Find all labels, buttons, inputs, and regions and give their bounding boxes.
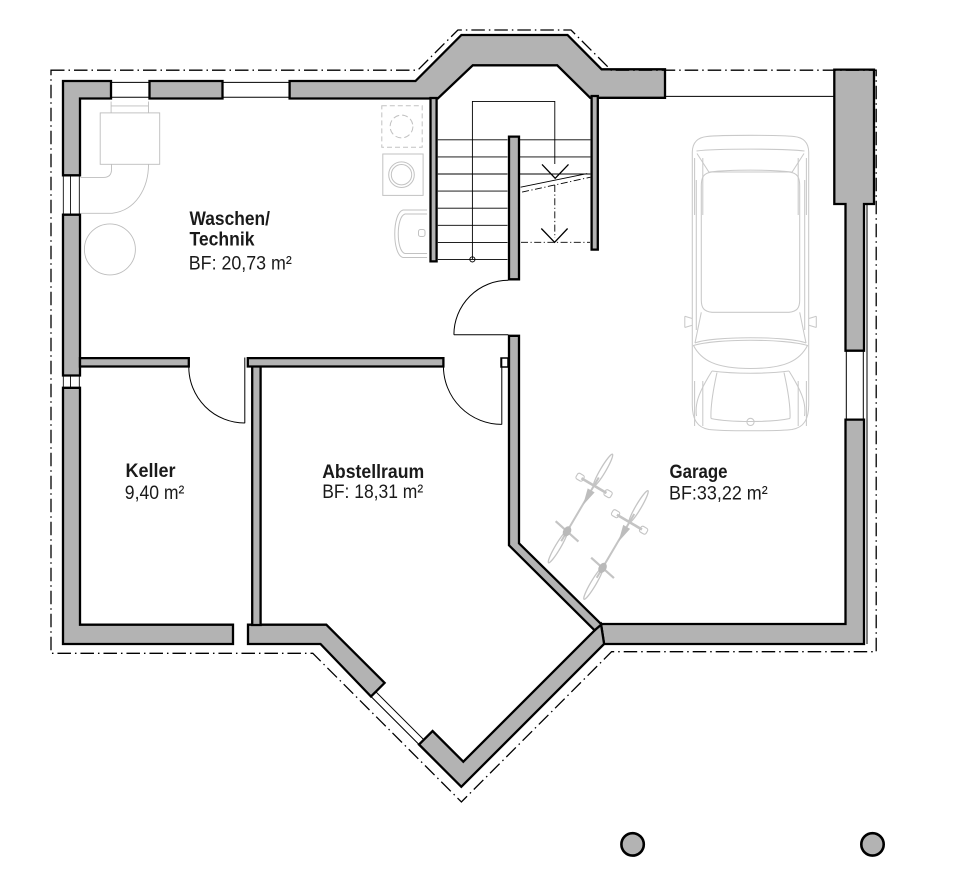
svg-text:BF: 18,31 m²: BF: 18,31 m²: [322, 482, 423, 503]
svg-text:BF:33,22 m²: BF:33,22 m²: [669, 484, 768, 505]
svg-text:Waschen/: Waschen/: [190, 209, 271, 230]
svg-text:BF: 20,73 m²: BF: 20,73 m²: [189, 254, 292, 275]
svg-text:Abstellraum: Abstellraum: [322, 462, 424, 483]
svg-text:Keller: Keller: [126, 461, 177, 482]
svg-text:Technik: Technik: [190, 230, 255, 251]
svg-text:Garage: Garage: [670, 462, 728, 483]
svg-text:9,40 m²: 9,40 m²: [125, 483, 185, 504]
